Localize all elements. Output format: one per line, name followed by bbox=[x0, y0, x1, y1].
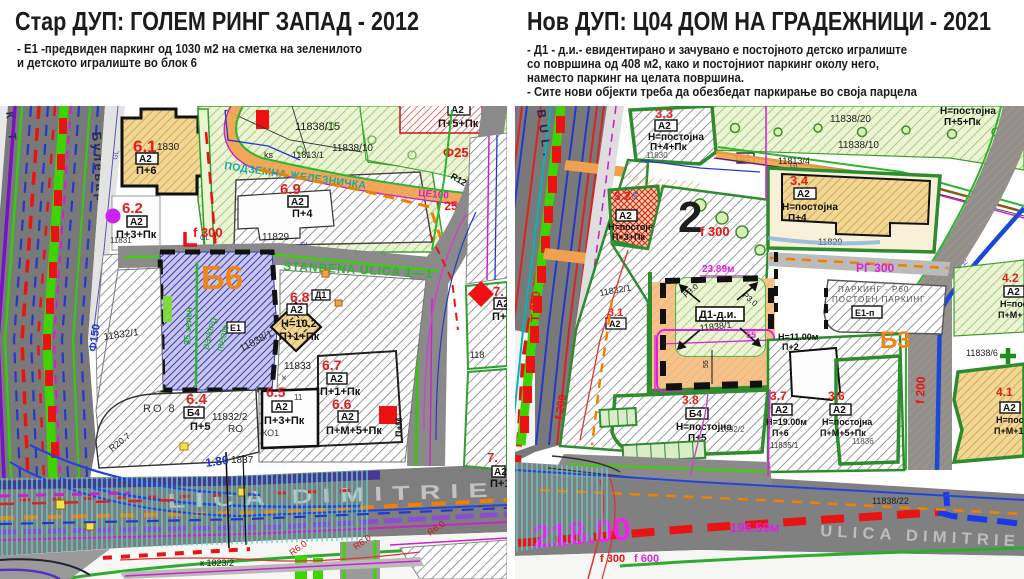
svg-text:Т 800: Т 800 bbox=[528, 291, 543, 322]
svg-text:6.8: 6.8 bbox=[290, 289, 310, 305]
svg-text:П+6: П+6 bbox=[772, 428, 789, 438]
svg-text:7.: 7. bbox=[487, 450, 498, 465]
svg-text:RO: RO bbox=[228, 424, 243, 435]
svg-text:П+3+Пк: П+3+Пк bbox=[264, 415, 305, 427]
svg-text:ПОСТОЕН ПАРКИНГ: ПОСТОЕН ПАРКИНГ bbox=[832, 295, 926, 304]
svg-text:А2: А2 bbox=[275, 402, 288, 413]
svg-text:Д1: Д1 bbox=[315, 290, 326, 300]
svg-text:Н=11.00м: Н=11.00м bbox=[778, 332, 819, 342]
svg-text:А2: А2 bbox=[451, 105, 464, 116]
svg-text:Стар ДУП: ГОЛЕМ РИНГ ЗАПАД - 2: Стар ДУП: ГОЛЕМ РИНГ ЗАПАД - 2012 bbox=[15, 6, 419, 36]
svg-text:П+М+1: П+М+1 bbox=[994, 426, 1023, 436]
svg-text:4.1: 4.1 bbox=[996, 385, 1013, 399]
svg-text:ПАРКИНГ - Р60: ПАРКИНГ - Р60 bbox=[838, 285, 909, 294]
svg-text:Н=постојна: Н=постојна bbox=[940, 106, 996, 117]
svg-text:11831: 11831 bbox=[110, 236, 132, 245]
svg-text:П+3+Пк: П+3+Пк bbox=[612, 232, 645, 242]
svg-text:11830: 11830 bbox=[646, 151, 668, 160]
svg-text:×: × bbox=[281, 373, 287, 384]
svg-text:П+5+Пк: П+5+Пк bbox=[438, 118, 479, 130]
svg-text:Д1-д.и.: Д1-д.и. bbox=[699, 309, 736, 321]
svg-text:А2: А2 bbox=[775, 405, 788, 416]
svg-text:П+М+: П+М+ bbox=[998, 310, 1022, 320]
svg-text:23.89м: 23.89м bbox=[702, 264, 734, 275]
svg-text:55: 55 bbox=[703, 360, 710, 368]
svg-text:1830: 1830 bbox=[157, 142, 180, 153]
svg-text:Б6: Б6 bbox=[201, 259, 243, 296]
svg-text:6.6: 6.6 bbox=[332, 396, 352, 412]
svg-text:35 зелен: 35 зелен bbox=[182, 307, 194, 345]
svg-text:Е1-п: Е1-п bbox=[855, 308, 874, 318]
svg-text:Б4: Б4 bbox=[689, 409, 702, 420]
svg-text:П+1+Пк: П+1+Пк bbox=[279, 331, 320, 343]
svg-text:А2: А2 bbox=[833, 405, 846, 416]
svg-text:А2: А2 bbox=[341, 412, 354, 423]
svg-text:6.4: 6.4 bbox=[186, 391, 208, 408]
svg-text:П+М: П+М bbox=[394, 418, 404, 437]
svg-text:Б4: Б4 bbox=[187, 408, 200, 419]
svg-text:П+2: П+2 bbox=[782, 342, 799, 352]
svg-text:и детското игралиште во блок 6: и детското игралиште во блок 6 bbox=[17, 55, 197, 70]
svg-text:11838/15: 11838/15 bbox=[295, 121, 340, 133]
svg-text:П+М+5+Пк: П+М+5+Пк bbox=[326, 425, 382, 437]
svg-text:RO 8: RO 8 bbox=[143, 403, 177, 415]
svg-text:Н=пос: Н=пос bbox=[996, 415, 1024, 425]
svg-text:КО1: КО1 bbox=[262, 428, 279, 438]
svg-text:Е1: Е1 bbox=[230, 323, 241, 333]
svg-text:Н=постојна: Н=постојна bbox=[782, 202, 838, 213]
svg-text:f 600: f 600 bbox=[634, 553, 659, 565]
svg-text:А2: А2 bbox=[130, 217, 143, 228]
svg-text:к 1823/2: к 1823/2 bbox=[200, 558, 234, 568]
svg-text:55: 55 bbox=[746, 330, 756, 340]
svg-text:11838/10: 11838/10 bbox=[332, 143, 373, 154]
svg-text:11813/4: 11813/4 bbox=[778, 156, 810, 166]
svg-text:f 300: f 300 bbox=[600, 553, 625, 565]
svg-text:Н=19.00м: Н=19.00м bbox=[766, 417, 807, 427]
svg-text:3.6: 3.6 bbox=[828, 389, 845, 403]
svg-text:- Д1 - д.и.- евидентирано и за: - Д1 - д.и.- евидентирано и зачувано е п… bbox=[527, 42, 907, 57]
svg-text:А2: А2 bbox=[139, 154, 152, 165]
svg-text:Б3: Б3 bbox=[880, 327, 911, 354]
svg-text:П+5+Пк: П+5+Пк bbox=[944, 117, 982, 128]
svg-text:А2: А2 bbox=[1003, 403, 1016, 414]
svg-text:А2: А2 bbox=[1007, 287, 1020, 298]
svg-text:118: 118 bbox=[470, 350, 484, 360]
svg-text:РГ 300: РГ 300 bbox=[856, 261, 894, 275]
svg-text:Н=пос: Н=пос bbox=[1000, 299, 1024, 309]
svg-text:со површина од 408 м2, како и: со површина од 408 м2, како и постојниот… bbox=[527, 56, 879, 71]
svg-text:- Сите нови објекти треба да о: - Сите нови објекти треба да обезбедат п… bbox=[527, 84, 918, 99]
svg-text:3.2: 3.2 bbox=[614, 189, 631, 203]
svg-text:3.8: 3.8 bbox=[682, 393, 699, 407]
svg-text:6.5: 6.5 bbox=[266, 384, 286, 400]
svg-text:4.2: 4.2 bbox=[1002, 271, 1019, 285]
svg-text:11836: 11836 bbox=[852, 437, 874, 446]
svg-text:6.2: 6.2 bbox=[122, 200, 143, 217]
svg-text:А2: А2 bbox=[291, 197, 304, 208]
svg-text:наместо паркинг на целата повр: наместо паркинг на целата површина. bbox=[527, 70, 744, 85]
svg-text:1632/2: 1632/2 bbox=[720, 425, 745, 434]
svg-text:Н=10.2: Н=10.2 bbox=[281, 318, 317, 330]
svg-text:П+4: П+4 bbox=[788, 213, 807, 224]
svg-text:1837: 1837 bbox=[231, 455, 254, 466]
svg-text:11838/6: 11838/6 bbox=[966, 348, 998, 358]
svg-text:11838/10: 11838/10 bbox=[838, 140, 879, 151]
svg-text:3.3: 3.3 bbox=[655, 106, 673, 121]
svg-text:11835/1: 11835/1 bbox=[770, 441, 799, 450]
svg-text:П+6: П+6 bbox=[136, 165, 156, 177]
svg-text:- Е1 -предвиден паркинг од 103: - Е1 -предвиден паркинг од 1030 м2 на см… bbox=[17, 41, 362, 56]
svg-text:f 300: f 300 bbox=[193, 225, 223, 240]
svg-text:А2: А2 bbox=[494, 467, 507, 478]
svg-text:11833: 11833 bbox=[284, 361, 312, 372]
svg-text:f 200: f 200 bbox=[913, 376, 928, 404]
svg-text:11829: 11829 bbox=[262, 232, 290, 243]
svg-text:А2: А2 bbox=[609, 319, 621, 329]
svg-text:Н=постојна: Н=постојна bbox=[822, 417, 873, 427]
svg-text:П+5: П+5 bbox=[190, 421, 210, 433]
svg-text:3.7: 3.7 bbox=[770, 389, 787, 403]
svg-text:196.59м: 196.59м bbox=[730, 520, 779, 535]
svg-text:2: 2 bbox=[678, 193, 702, 242]
svg-text:11: 11 bbox=[294, 393, 303, 402]
svg-text:А2: А2 bbox=[330, 374, 343, 385]
svg-text:f 300: f 300 bbox=[700, 224, 730, 239]
svg-text:11832/2: 11832/2 bbox=[212, 412, 248, 423]
svg-text:6.7: 6.7 bbox=[322, 357, 342, 373]
svg-text:3.4: 3.4 bbox=[790, 173, 809, 188]
svg-text:11838/20: 11838/20 bbox=[830, 114, 871, 125]
svg-text:Нов ДУП: Ц04 ДОМ НА ГРАДЕЖНИЦИ: Нов ДУП: Ц04 ДОМ НА ГРАДЕЖНИЦИ - 2021 bbox=[527, 6, 991, 36]
svg-text:11838/22: 11838/22 bbox=[872, 496, 909, 506]
svg-text:А2: А2 bbox=[797, 189, 810, 200]
svg-text:7.: 7. bbox=[493, 284, 504, 299]
svg-text:П+4: П+4 bbox=[292, 208, 313, 220]
svg-text:А2: А2 bbox=[290, 305, 303, 316]
svg-text:А2: А2 bbox=[658, 121, 671, 132]
svg-text:А2: А2 bbox=[619, 211, 632, 222]
